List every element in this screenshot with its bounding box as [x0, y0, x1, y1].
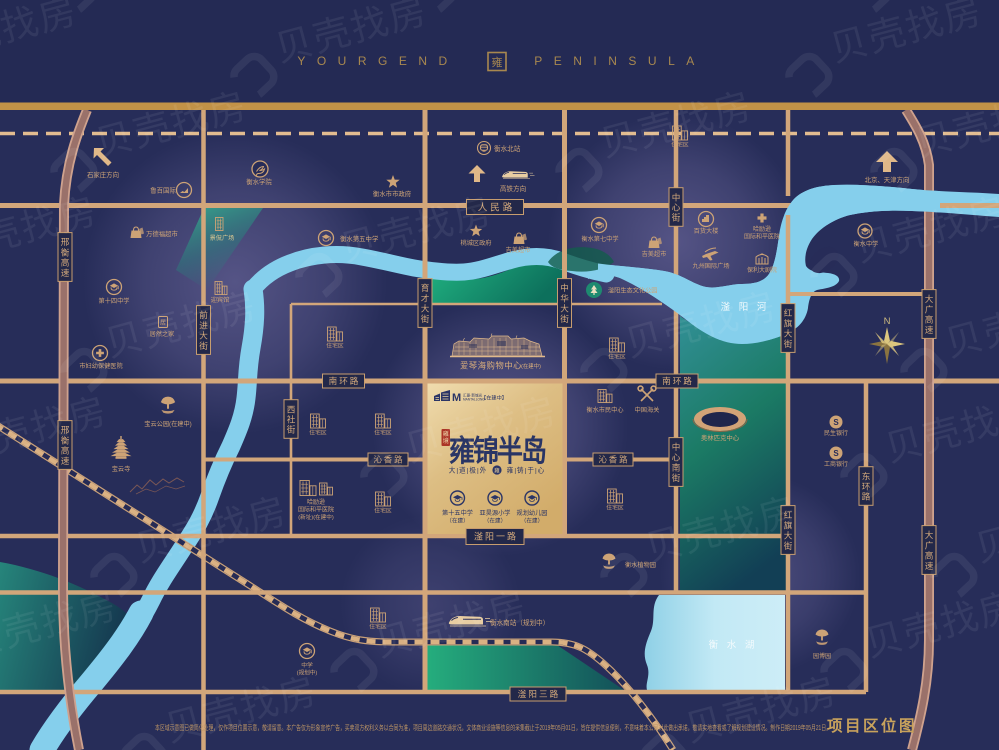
- svg-text:才: 才: [421, 292, 430, 303]
- svg-text:中国海关: 中国海关: [635, 406, 660, 414]
- svg-text:第十四中学: 第十四中学: [99, 297, 130, 305]
- svg-text:心: 心: [672, 203, 681, 213]
- svg-text:保利大剧院: 保利大剧院: [747, 266, 777, 274]
- svg-text:S: S: [833, 418, 839, 427]
- svg-text:奥林匹克中心: 奥林匹克中心: [701, 433, 740, 442]
- svg-text:大: 大: [925, 529, 934, 540]
- svg-text:住宅区: 住宅区: [326, 342, 344, 350]
- svg-text:速: 速: [61, 456, 70, 466]
- svg-text:街: 街: [672, 212, 681, 223]
- svg-text:高: 高: [925, 550, 934, 561]
- svg-text:街: 街: [199, 340, 208, 351]
- svg-text:东: 东: [862, 470, 871, 481]
- svg-text:第十五中学: 第十五中学: [442, 509, 473, 517]
- svg-text:旗: 旗: [784, 317, 793, 328]
- svg-text:南环路: 南环路: [329, 375, 361, 386]
- svg-text:民生银行: 民生银行: [824, 429, 848, 437]
- svg-text:雍: 雍: [494, 466, 500, 474]
- svg-text:桃城区政府: 桃城区政府: [461, 239, 492, 247]
- svg-text:衡 水 湖: 衡 水 湖: [709, 639, 758, 651]
- svg-text:红: 红: [784, 307, 793, 318]
- svg-text:（在建）: （在建）: [446, 517, 468, 525]
- svg-text:社: 社: [287, 414, 296, 425]
- svg-text:沁香路: 沁香路: [598, 455, 629, 465]
- svg-text:育: 育: [421, 282, 430, 293]
- svg-text:PENINSULA: PENINSULA: [534, 54, 706, 68]
- svg-text:街: 街: [421, 313, 430, 324]
- svg-text:中: 中: [560, 282, 569, 293]
- svg-text:宝云寺: 宝云寺: [112, 465, 131, 473]
- svg-text:哈励逊: 哈励逊: [753, 225, 771, 233]
- svg-text:S: S: [833, 449, 839, 458]
- svg-text:住宅区: 住宅区: [309, 429, 327, 437]
- svg-text:鲁百国际: 鲁百国际: [150, 186, 176, 195]
- svg-text:街: 街: [784, 540, 793, 551]
- svg-text:滏阳一路: 滏阳一路: [474, 531, 518, 542]
- svg-text:规划幼儿园: 规划幼儿园: [517, 509, 548, 517]
- svg-text:大: 大: [560, 303, 569, 314]
- svg-text:西: 西: [287, 404, 296, 414]
- svg-text:华: 华: [560, 292, 569, 303]
- svg-text:滏阳生态文化公园: 滏阳生态文化公园: [608, 287, 658, 295]
- svg-text:（在建）: （在建）: [521, 517, 543, 525]
- svg-text:衡水学院: 衡水学院: [246, 177, 272, 186]
- svg-text:景侃广场: 景侃广场: [210, 234, 235, 242]
- svg-text:中: 中: [672, 441, 681, 452]
- svg-text:百货大楼: 百货大楼: [694, 227, 719, 235]
- svg-text:（在建）: （在建）: [484, 517, 506, 525]
- svg-text:住宅区: 住宅区: [374, 429, 392, 437]
- svg-text:大: 大: [421, 303, 430, 314]
- svg-text:衡水市民中心: 衡水市民中心: [586, 406, 623, 414]
- svg-text:街: 街: [784, 338, 793, 349]
- svg-text:爱琴海购物中心: 爱琴海购物中心: [460, 361, 522, 371]
- svg-text:广: 广: [925, 303, 934, 314]
- svg-text:项目区位图: 项目区位图: [827, 716, 917, 735]
- svg-text:南环路: 南环路: [662, 375, 694, 386]
- svg-text:速: 速: [61, 268, 70, 278]
- svg-text:(新址)(在建中): (新址)(在建中): [298, 513, 334, 521]
- svg-text:速: 速: [925, 325, 934, 335]
- svg-text:高铁方向: 高铁方向: [500, 184, 526, 193]
- svg-text:住宅区: 住宅区: [374, 507, 392, 515]
- svg-text:高: 高: [61, 257, 70, 268]
- svg-text:衡水第七中学: 衡水第七中学: [581, 235, 618, 243]
- svg-text:街: 街: [287, 424, 296, 435]
- svg-text:高: 高: [61, 445, 70, 456]
- svg-text:国际和平医院: 国际和平医院: [744, 233, 780, 241]
- svg-text:衡水北站: 衡水北站: [494, 144, 521, 153]
- svg-text:吉美超市: 吉美超市: [642, 250, 667, 258]
- svg-text:南: 南: [672, 462, 681, 473]
- svg-text:吉美超市: 吉美超市: [506, 246, 531, 254]
- svg-text:高: 高: [925, 314, 934, 325]
- svg-text:M: M: [452, 392, 461, 404]
- svg-text:亚昊源小学: 亚昊源小学: [480, 509, 511, 517]
- svg-text:衡: 衡: [61, 246, 70, 257]
- svg-text:九州国际广场: 九州国际广场: [692, 262, 729, 270]
- svg-text:国际和平医院: 国际和平医院: [298, 506, 334, 514]
- svg-text:滏阳三路: 滏阳三路: [518, 688, 560, 699]
- svg-text:大: 大: [925, 293, 934, 304]
- svg-text:宝云公园(在建中): 宝云公园(在建中): [144, 420, 191, 428]
- svg-text:广: 广: [925, 539, 934, 550]
- svg-text:衡水市市政府: 衡水市市政府: [373, 189, 412, 198]
- svg-text:(在建中): (在建中): [521, 362, 541, 370]
- svg-text:街: 街: [560, 313, 569, 324]
- svg-text:万德福超市: 万德福超市: [146, 229, 179, 238]
- svg-text:心: 心: [672, 452, 681, 462]
- svg-text:【在建中】: 【在建中】: [481, 394, 507, 402]
- svg-text:住宅区: 住宅区: [606, 504, 624, 512]
- svg-text:雍: 雍: [492, 55, 503, 69]
- svg-text:N: N: [884, 316, 891, 327]
- svg-text:哈励逊: 哈励逊: [307, 498, 325, 506]
- svg-text:大|道|极|外: 大|道|极|外: [449, 466, 488, 475]
- svg-text:中: 中: [672, 191, 681, 202]
- svg-text:大: 大: [784, 328, 793, 339]
- svg-text:雍|铸|于|心: 雍|铸|于|心: [507, 466, 546, 475]
- svg-text:中学: 中学: [301, 661, 313, 669]
- svg-text:街: 街: [672, 472, 681, 483]
